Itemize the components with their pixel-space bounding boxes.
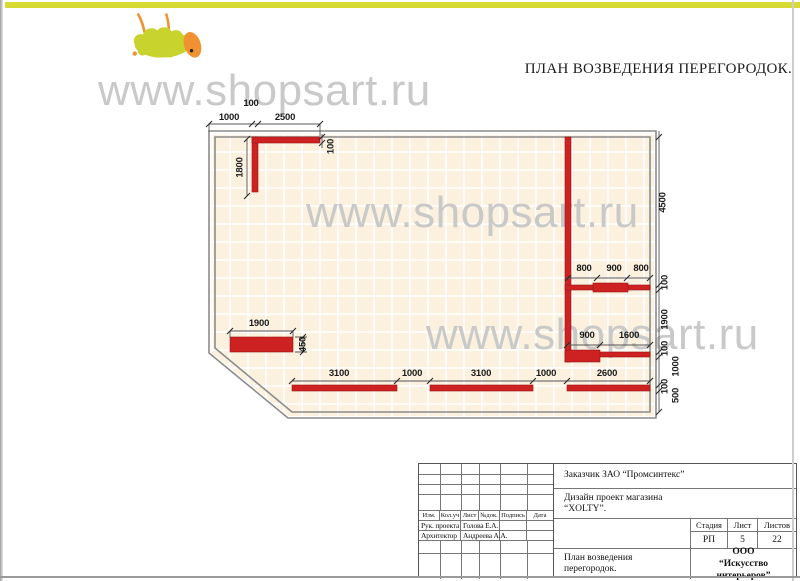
customer-cell: Заказчик ЗАО “Промсинтекс” xyxy=(554,464,796,489)
dim-right-100c: 100 xyxy=(660,367,671,407)
project-cell: Дизайн проект магазина “XOLTY”. xyxy=(554,489,796,519)
col-header-ndok: №док. xyxy=(479,511,500,521)
customer-text: Заказчик ЗАО “Промсинтекс” xyxy=(564,470,684,480)
manager-date-cell xyxy=(527,521,553,531)
inner-wall-line xyxy=(215,137,650,412)
drawing-name-line1: План возведения xyxy=(564,553,690,564)
stage-value: РП xyxy=(691,532,728,548)
drawing-name-row: План возведения перегородок. ООО “Искусс… xyxy=(554,549,796,579)
dim-rect-450: 450 xyxy=(298,325,309,365)
project-line2: “XOLTY”. xyxy=(564,504,796,515)
dim-top-100: 100 xyxy=(231,98,271,109)
stage-header: Стадия xyxy=(691,519,728,531)
company-cell: ООО “Искусство интерьеров” xyxy=(691,549,796,579)
dim-right-500: 500 xyxy=(671,376,682,416)
company-line1: ООО xyxy=(732,546,754,558)
col-header-data: Дата xyxy=(527,511,553,521)
dim-right-4500: 4500 xyxy=(658,183,669,223)
stage-row-empty-cell xyxy=(554,519,691,548)
caterpillar-logo-icon xyxy=(125,10,213,64)
drawing-name-cell: План возведения перегородок. xyxy=(554,549,691,579)
revision-table: Изм. Кол.уч Лист №док. Подпись Дата Рук.… xyxy=(419,464,554,577)
revision-table-bottom-rows xyxy=(419,541,553,579)
revision-table-header-row: Изм. Кол.уч Лист №док. Подпись Дата xyxy=(419,511,553,521)
dim-top-1000: 1000 xyxy=(209,112,249,123)
dim-right-100a: 100 xyxy=(660,263,671,303)
drawing-sheet: ПЛАН ВОЗВЕДЕНИЯ ПЕРЕГОРОДОК. www.shopsar… xyxy=(0,0,800,581)
page-right-edge xyxy=(792,0,794,581)
architect-name: Андреева А.А. xyxy=(461,531,500,541)
col-header-koluch: Кол.уч xyxy=(440,511,461,521)
drawing-name-line2: перегородок. xyxy=(564,564,690,575)
architect-date-cell xyxy=(527,531,553,541)
stage-row: Стадия Лист Листов РП 5 22 xyxy=(554,519,796,549)
dim-bot-3100a: 3100 xyxy=(319,368,359,379)
col-header-izm: Изм. xyxy=(419,511,440,521)
dim-right-100b: 100 xyxy=(660,329,671,369)
sheets-header: Листов xyxy=(758,519,796,531)
dim-bot-3100b: 3100 xyxy=(461,368,501,379)
dim-wall-100: 100 xyxy=(326,127,337,167)
manager-name: Голова Е.А. xyxy=(461,521,500,531)
page-bottom-edge xyxy=(0,576,800,578)
dim-low-900: 900 xyxy=(567,330,607,341)
revision-table-empty-rows xyxy=(419,464,553,511)
page-left-edge xyxy=(0,0,3,581)
dim-bot-1000b: 1000 xyxy=(526,368,566,379)
manager-label: Рук. проекта xyxy=(419,521,461,531)
col-header-list: Лист xyxy=(461,511,479,521)
dim-bot-2600: 2600 xyxy=(587,368,627,379)
title-block: Изм. Кол.уч Лист №док. Подпись Дата Рук.… xyxy=(418,463,797,578)
architect-signature-cell xyxy=(500,531,527,541)
page-title: ПЛАН ВОЗВЕДЕНИЯ ПЕРЕГОРОДОК. xyxy=(525,61,792,78)
dim-top-2500: 2500 xyxy=(265,112,305,123)
manager-signature-cell xyxy=(500,521,527,531)
dim-left-1800: 1800 xyxy=(235,148,246,188)
dim-mid-800b: 800 xyxy=(621,263,661,274)
dim-bot-1000a: 1000 xyxy=(392,368,432,379)
manager-row: Рук. проекта Голова Е.А. xyxy=(419,521,553,531)
stage-grid-header: Стадия Лист Листов xyxy=(691,519,796,532)
stage-grid: Стадия Лист Листов РП 5 22 xyxy=(691,519,796,548)
top-yellow-bar xyxy=(5,2,800,8)
project-line1: Дизайн проект магазина xyxy=(564,493,796,504)
sheets-value: 22 xyxy=(758,532,796,548)
sheet-header: Лист xyxy=(728,519,758,531)
col-header-podpis: Подпись xyxy=(500,511,527,521)
architect-row: Архитектор Андреева А.А. xyxy=(419,531,553,541)
dim-low-1600: 1600 xyxy=(609,330,649,341)
title-block-main: Заказчик ЗАО “Промсинтекс” Дизайн проект… xyxy=(554,464,796,577)
architect-label: Архитектор xyxy=(419,531,461,541)
dim-rect-1900: 1900 xyxy=(239,318,279,329)
